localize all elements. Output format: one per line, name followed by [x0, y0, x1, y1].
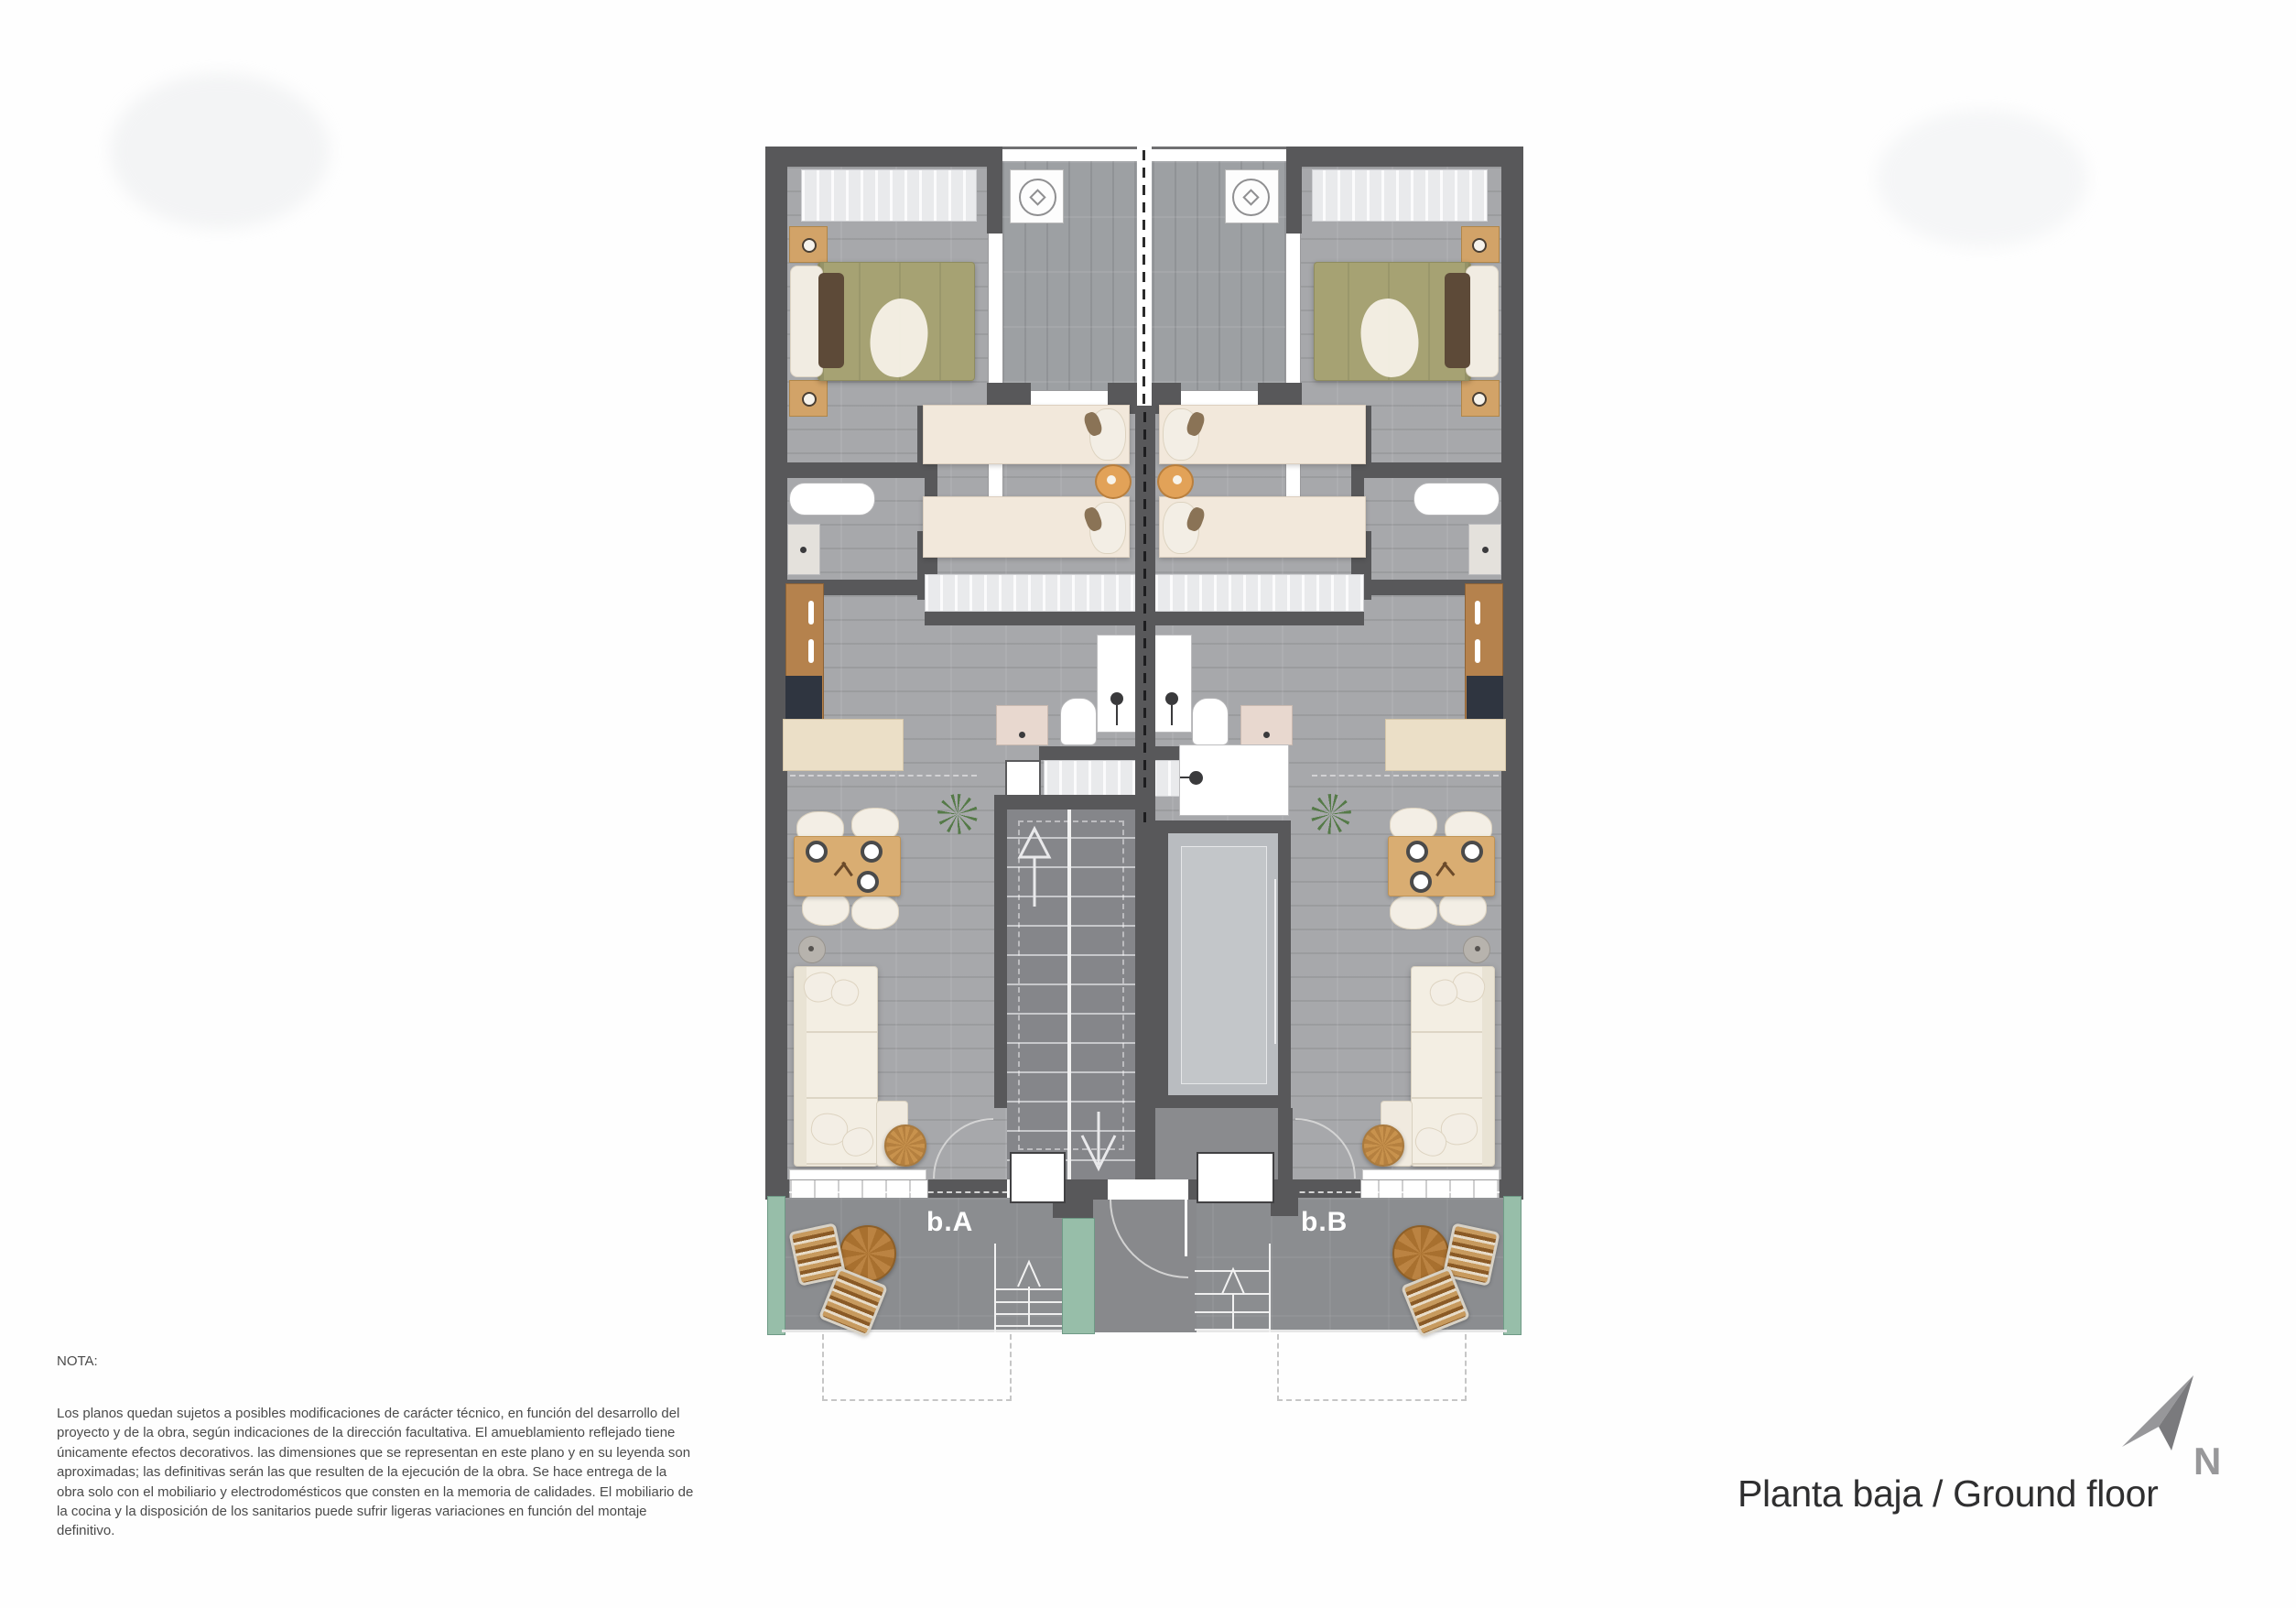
shower-large — [1179, 744, 1289, 816]
wall-stub — [1188, 1179, 1197, 1200]
entry-walkway-a — [994, 1244, 1064, 1332]
entry-door-b — [1197, 1152, 1274, 1203]
property-dashed-line — [1143, 412, 1146, 829]
entry-door-a — [1010, 1152, 1066, 1203]
corridor-door-leaf — [1185, 1200, 1187, 1256]
elevator-cab-inner — [1181, 846, 1267, 1084]
shower-hose-icon — [1180, 777, 1191, 778]
floor-plan-sheet: b.A b.B NOTA: Los planos quedan sujetos … — [0, 0, 2296, 1608]
watermark-smudge-left — [110, 73, 330, 229]
page-title: Planta baja / Ground floor — [1738, 1472, 2158, 1516]
note-text: Los planos quedan sujetos a posibles mod… — [57, 1404, 698, 1541]
north-arrow-icon — [2113, 1372, 2197, 1452]
entry-walkway-b — [1193, 1244, 1272, 1332]
stair-wall-top — [994, 795, 1155, 809]
wall-chunk — [1271, 1179, 1298, 1216]
corridor-door-gap — [1108, 1179, 1188, 1200]
stair-wall-left — [994, 809, 1007, 1108]
floor-plan: b.A b.B — [765, 147, 1523, 1410]
core: b.A b.B — [765, 147, 1523, 1410]
planter-strip-centre — [1062, 1218, 1095, 1334]
watermark-smudge-right — [1877, 110, 2087, 247]
note-heading: NOTA: — [57, 1353, 698, 1369]
unit-label-b: b.B — [1301, 1207, 1348, 1238]
elevator-door-line — [1274, 879, 1276, 1044]
unit-label-a: b.A — [926, 1207, 973, 1238]
north-label: N — [2193, 1440, 2221, 1483]
shower-drain-icon — [1189, 771, 1203, 785]
note-block: NOTA: Los planos quedan sujetos a posibl… — [57, 1353, 698, 1541]
property-dashed-line — [1143, 150, 1145, 407]
stair-direction-arrows — [1007, 809, 1135, 1179]
